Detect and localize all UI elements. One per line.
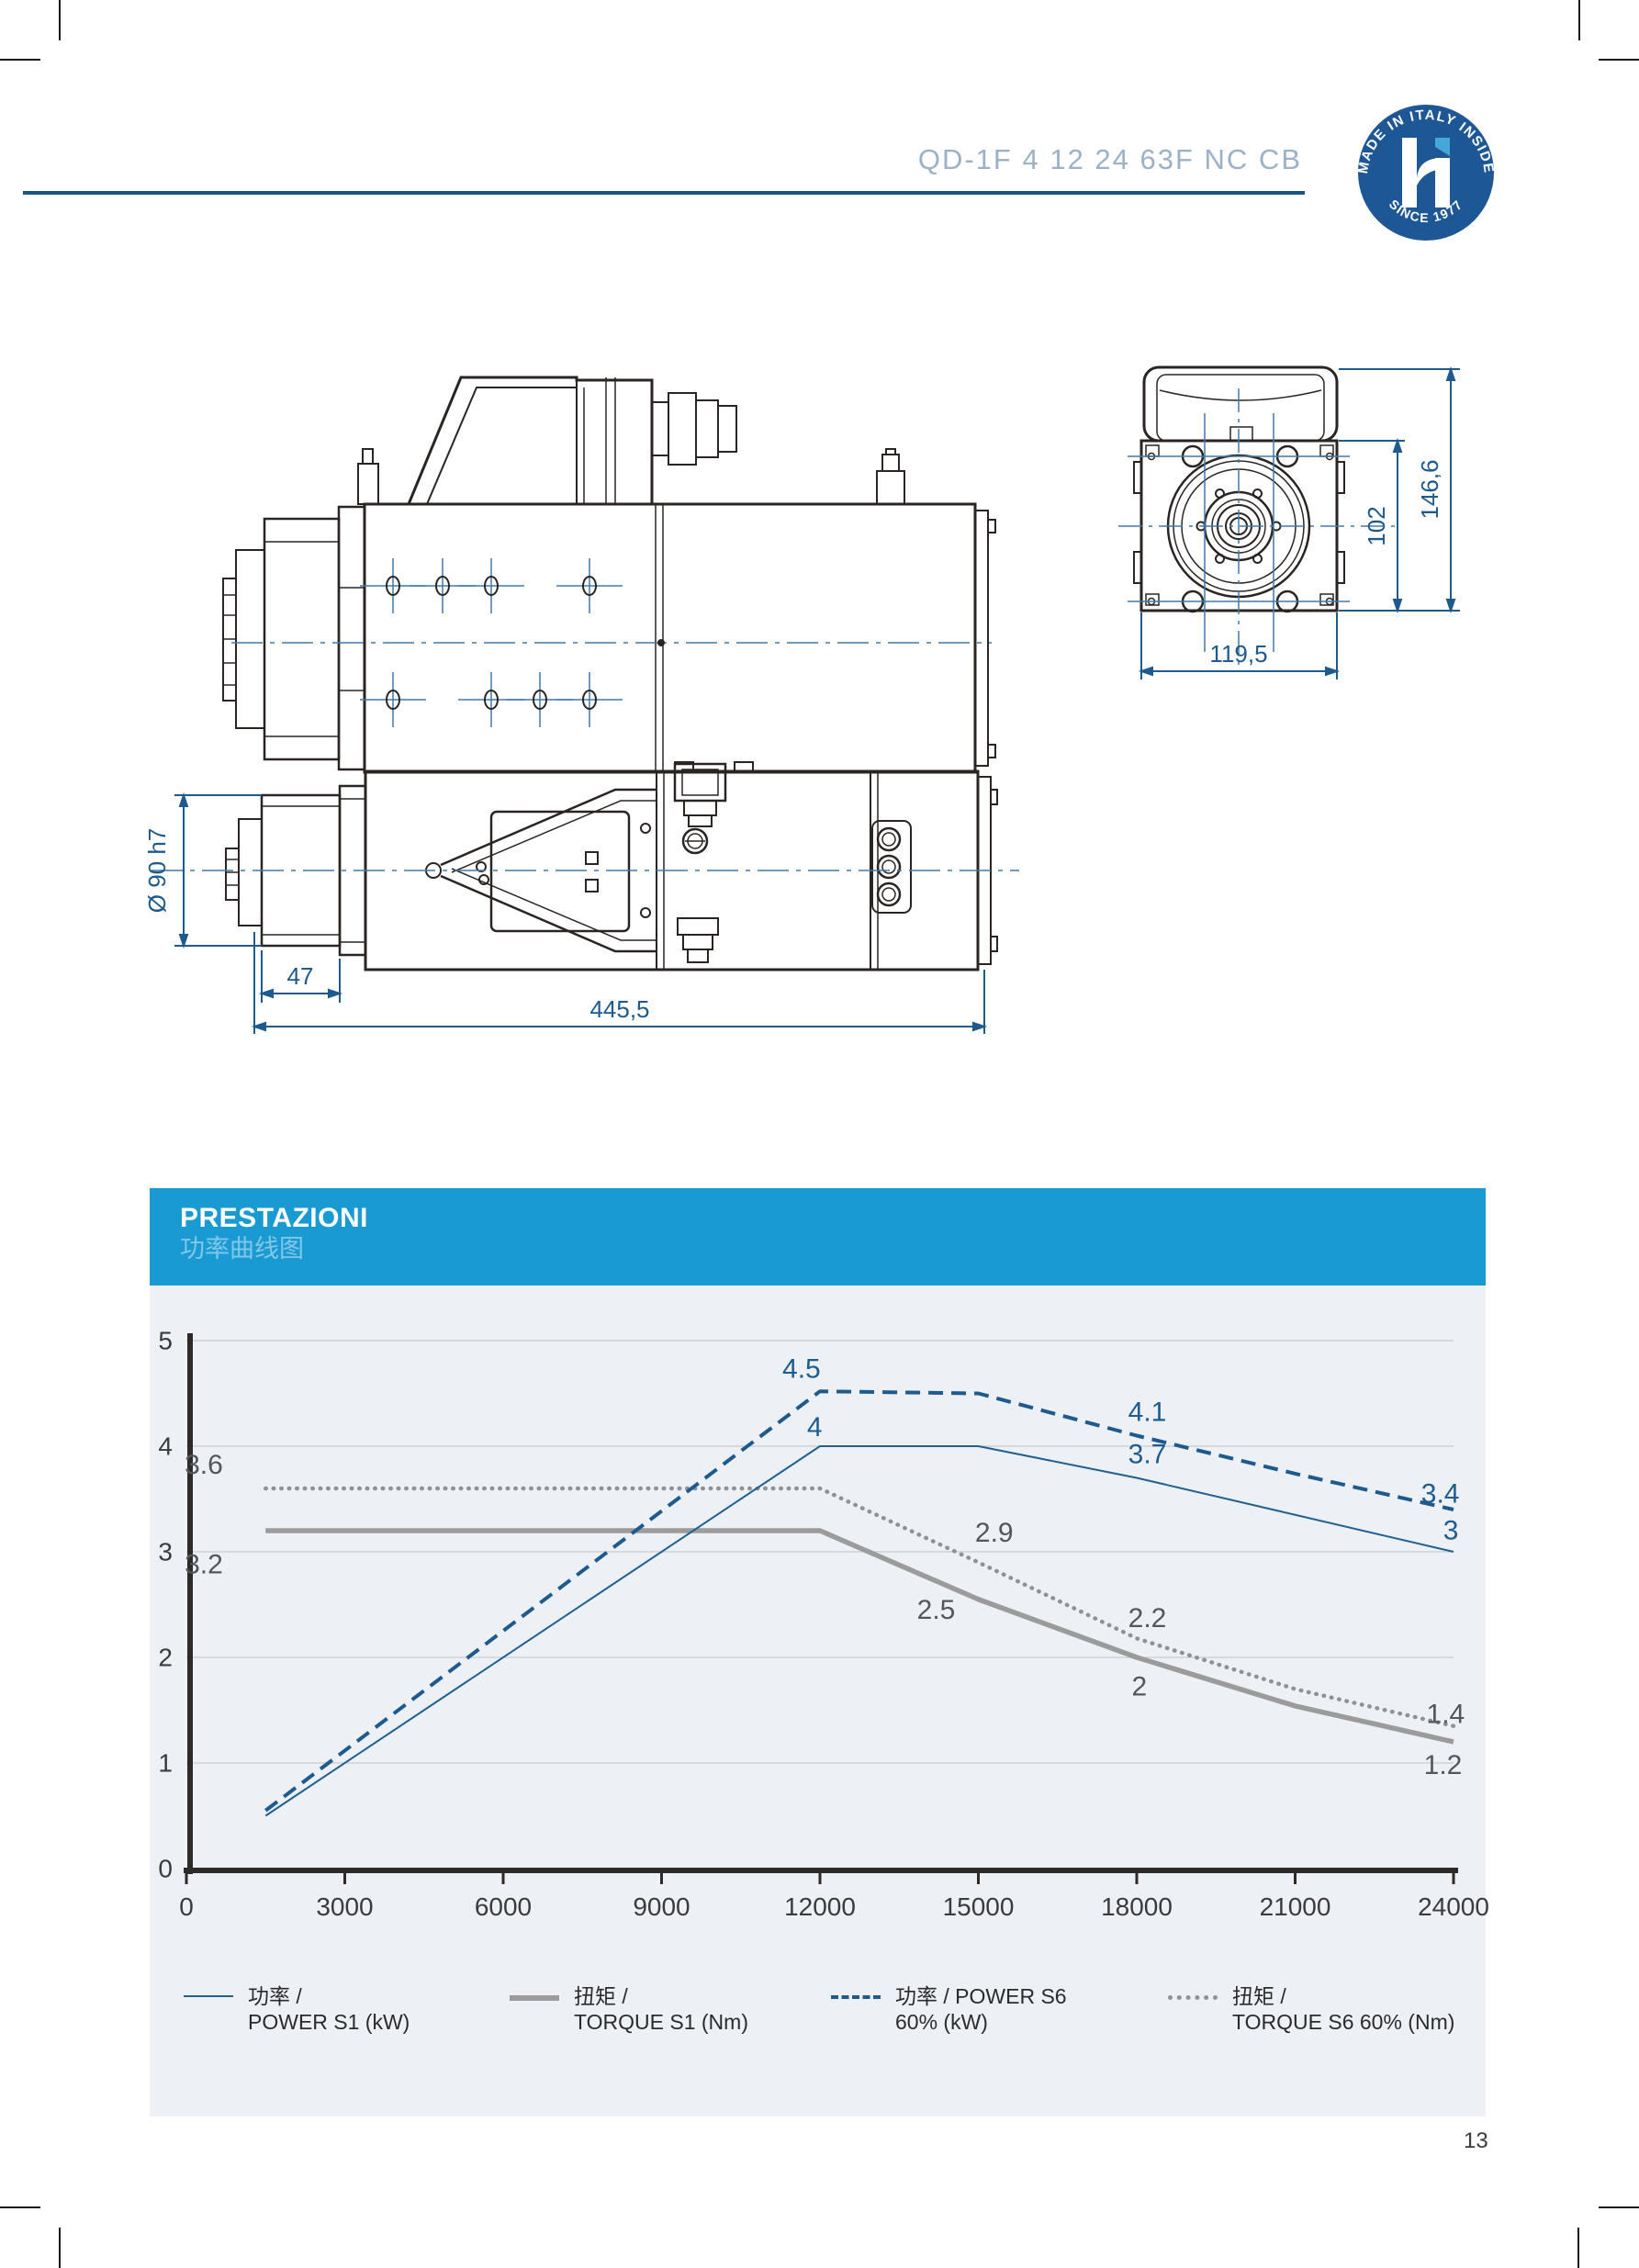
point-label: 3.4 <box>1421 1478 1460 1509</box>
x-tick-label: 6000 <box>475 1892 532 1921</box>
side-view-drawing <box>220 358 1001 790</box>
x-tick-label: 0 <box>179 1892 194 1921</box>
y-tick-label: 0 <box>158 1855 173 1883</box>
performance-chart: 0123450300060009000120001500018000210002… <box>138 1313 1497 1956</box>
series-torque-s1 <box>265 1531 1454 1742</box>
legend-power-s6: 功率 / POWER S6 60% (kW) <box>831 1983 1067 2035</box>
center-dot <box>657 639 665 646</box>
datasheet-page: QD-1F 4 12 24 63F NC CB MADE IN ITALY IN… <box>0 0 1639 2268</box>
dim-overall-length: 445,5 <box>589 995 649 1023</box>
legend-torque-s1: 扭矩 / TORQUE S1 (Nm) <box>510 1983 748 2035</box>
legend-label: 扭矩 / TORQUE S1 (Nm) <box>574 1983 748 2035</box>
x-tick-label: 9000 <box>633 1892 690 1921</box>
x-tick-label: 3000 <box>316 1892 373 1921</box>
point-label: 3 <box>1443 1516 1459 1546</box>
crop-mark <box>0 2206 40 2208</box>
point-label: 2.5 <box>917 1595 956 1625</box>
y-tick-label: 1 <box>158 1749 173 1778</box>
section-title: PRESTAZIONI <box>180 1203 1486 1234</box>
thin-blue-line-swatch-icon <box>184 1995 233 1997</box>
crop-mark <box>1577 2228 1579 2268</box>
plan-view-outline <box>226 762 997 970</box>
x-tick-label: 12000 <box>784 1892 856 1921</box>
front-centerlines <box>1118 388 1396 666</box>
x-tick-label: 21000 <box>1260 1892 1331 1921</box>
point-label: 4 <box>807 1412 823 1443</box>
legend-label: 扭矩 / TORQUE S6 60% (Nm) <box>1232 1983 1454 2035</box>
crop-mark <box>1578 0 1580 40</box>
x-tick-label: 18000 <box>1101 1892 1173 1921</box>
product-code: QD-1F 4 12 24 63F NC CB <box>918 143 1302 176</box>
dotted-gray-line-swatch-icon <box>1168 1995 1218 2000</box>
y-tick-label: 2 <box>158 1644 173 1672</box>
thick-gray-line-swatch-icon <box>510 1995 559 2001</box>
point-label: 4.5 <box>782 1354 821 1385</box>
dim-shaft-diameter: Ø 90 h7 <box>143 828 171 914</box>
series-power-s1 <box>265 1446 1454 1816</box>
crop-mark <box>1599 59 1639 61</box>
page-number: 13 <box>1464 2128 1488 2154</box>
made-in-italy-badge-icon: MADE IN ITALY INSIDE SINCE 1977 <box>1354 101 1498 244</box>
series-torque-s6 <box>265 1488 1454 1726</box>
dashed-blue-line-swatch-icon <box>831 1995 881 1999</box>
header-rule <box>23 191 1305 195</box>
point-label: 2 <box>1132 1672 1148 1702</box>
point-label: 2.9 <box>975 1518 1014 1548</box>
point-label: 1.2 <box>1424 1750 1463 1780</box>
dim-nose-length: 47 <box>287 962 314 990</box>
y-tick-label: 3 <box>158 1538 173 1566</box>
point-label: 1.4 <box>1427 1700 1465 1730</box>
front-view-drawing: 146,6 102 119,5 <box>1083 363 1497 693</box>
point-label: 2.2 <box>1128 1603 1167 1634</box>
legend-power-s1: 功率 / POWER S1 (kW) <box>184 1983 410 2035</box>
plan-view-dimensions <box>174 795 984 1034</box>
legend-torque-s6: 扭矩 / TORQUE S6 60% (Nm) <box>1168 1983 1454 2035</box>
point-label: 3.6 <box>185 1450 223 1480</box>
dim-flange-height: 102 <box>1363 506 1390 545</box>
legend-label: 功率 / POWER S1 (kW) <box>248 1983 410 2035</box>
dim-overall-height: 146,6 <box>1416 459 1443 519</box>
x-tick-label: 24000 <box>1418 1892 1489 1921</box>
crop-mark <box>59 2228 61 2268</box>
y-tick-label: 5 <box>158 1327 173 1355</box>
point-label: 3.2 <box>185 1549 223 1579</box>
y-tick-label: 4 <box>158 1432 173 1461</box>
series-power-s6 <box>265 1391 1454 1811</box>
side-view-outline <box>223 377 995 772</box>
section-subtitle: 功率曲线图 <box>180 1234 1486 1263</box>
centerlines <box>231 558 992 727</box>
plan-view-drawing: Ø 90 h7 47 445,5 <box>138 753 1047 1047</box>
point-label: 4.1 <box>1128 1398 1167 1428</box>
point-label: 3.7 <box>1128 1440 1167 1470</box>
spindle-nose-circles <box>1149 446 1333 612</box>
front-view-dimensions <box>1141 369 1460 679</box>
dim-body-width: 119,5 <box>1209 640 1267 668</box>
crop-mark <box>1599 2206 1639 2208</box>
performance-header-band: PRESTAZIONI 功率曲线图 <box>150 1188 1486 1286</box>
x-tick-label: 15000 <box>943 1892 1015 1921</box>
legend-label: 功率 / POWER S6 60% (kW) <box>895 1983 1067 2035</box>
crop-mark <box>59 0 61 40</box>
crop-mark <box>0 59 40 61</box>
